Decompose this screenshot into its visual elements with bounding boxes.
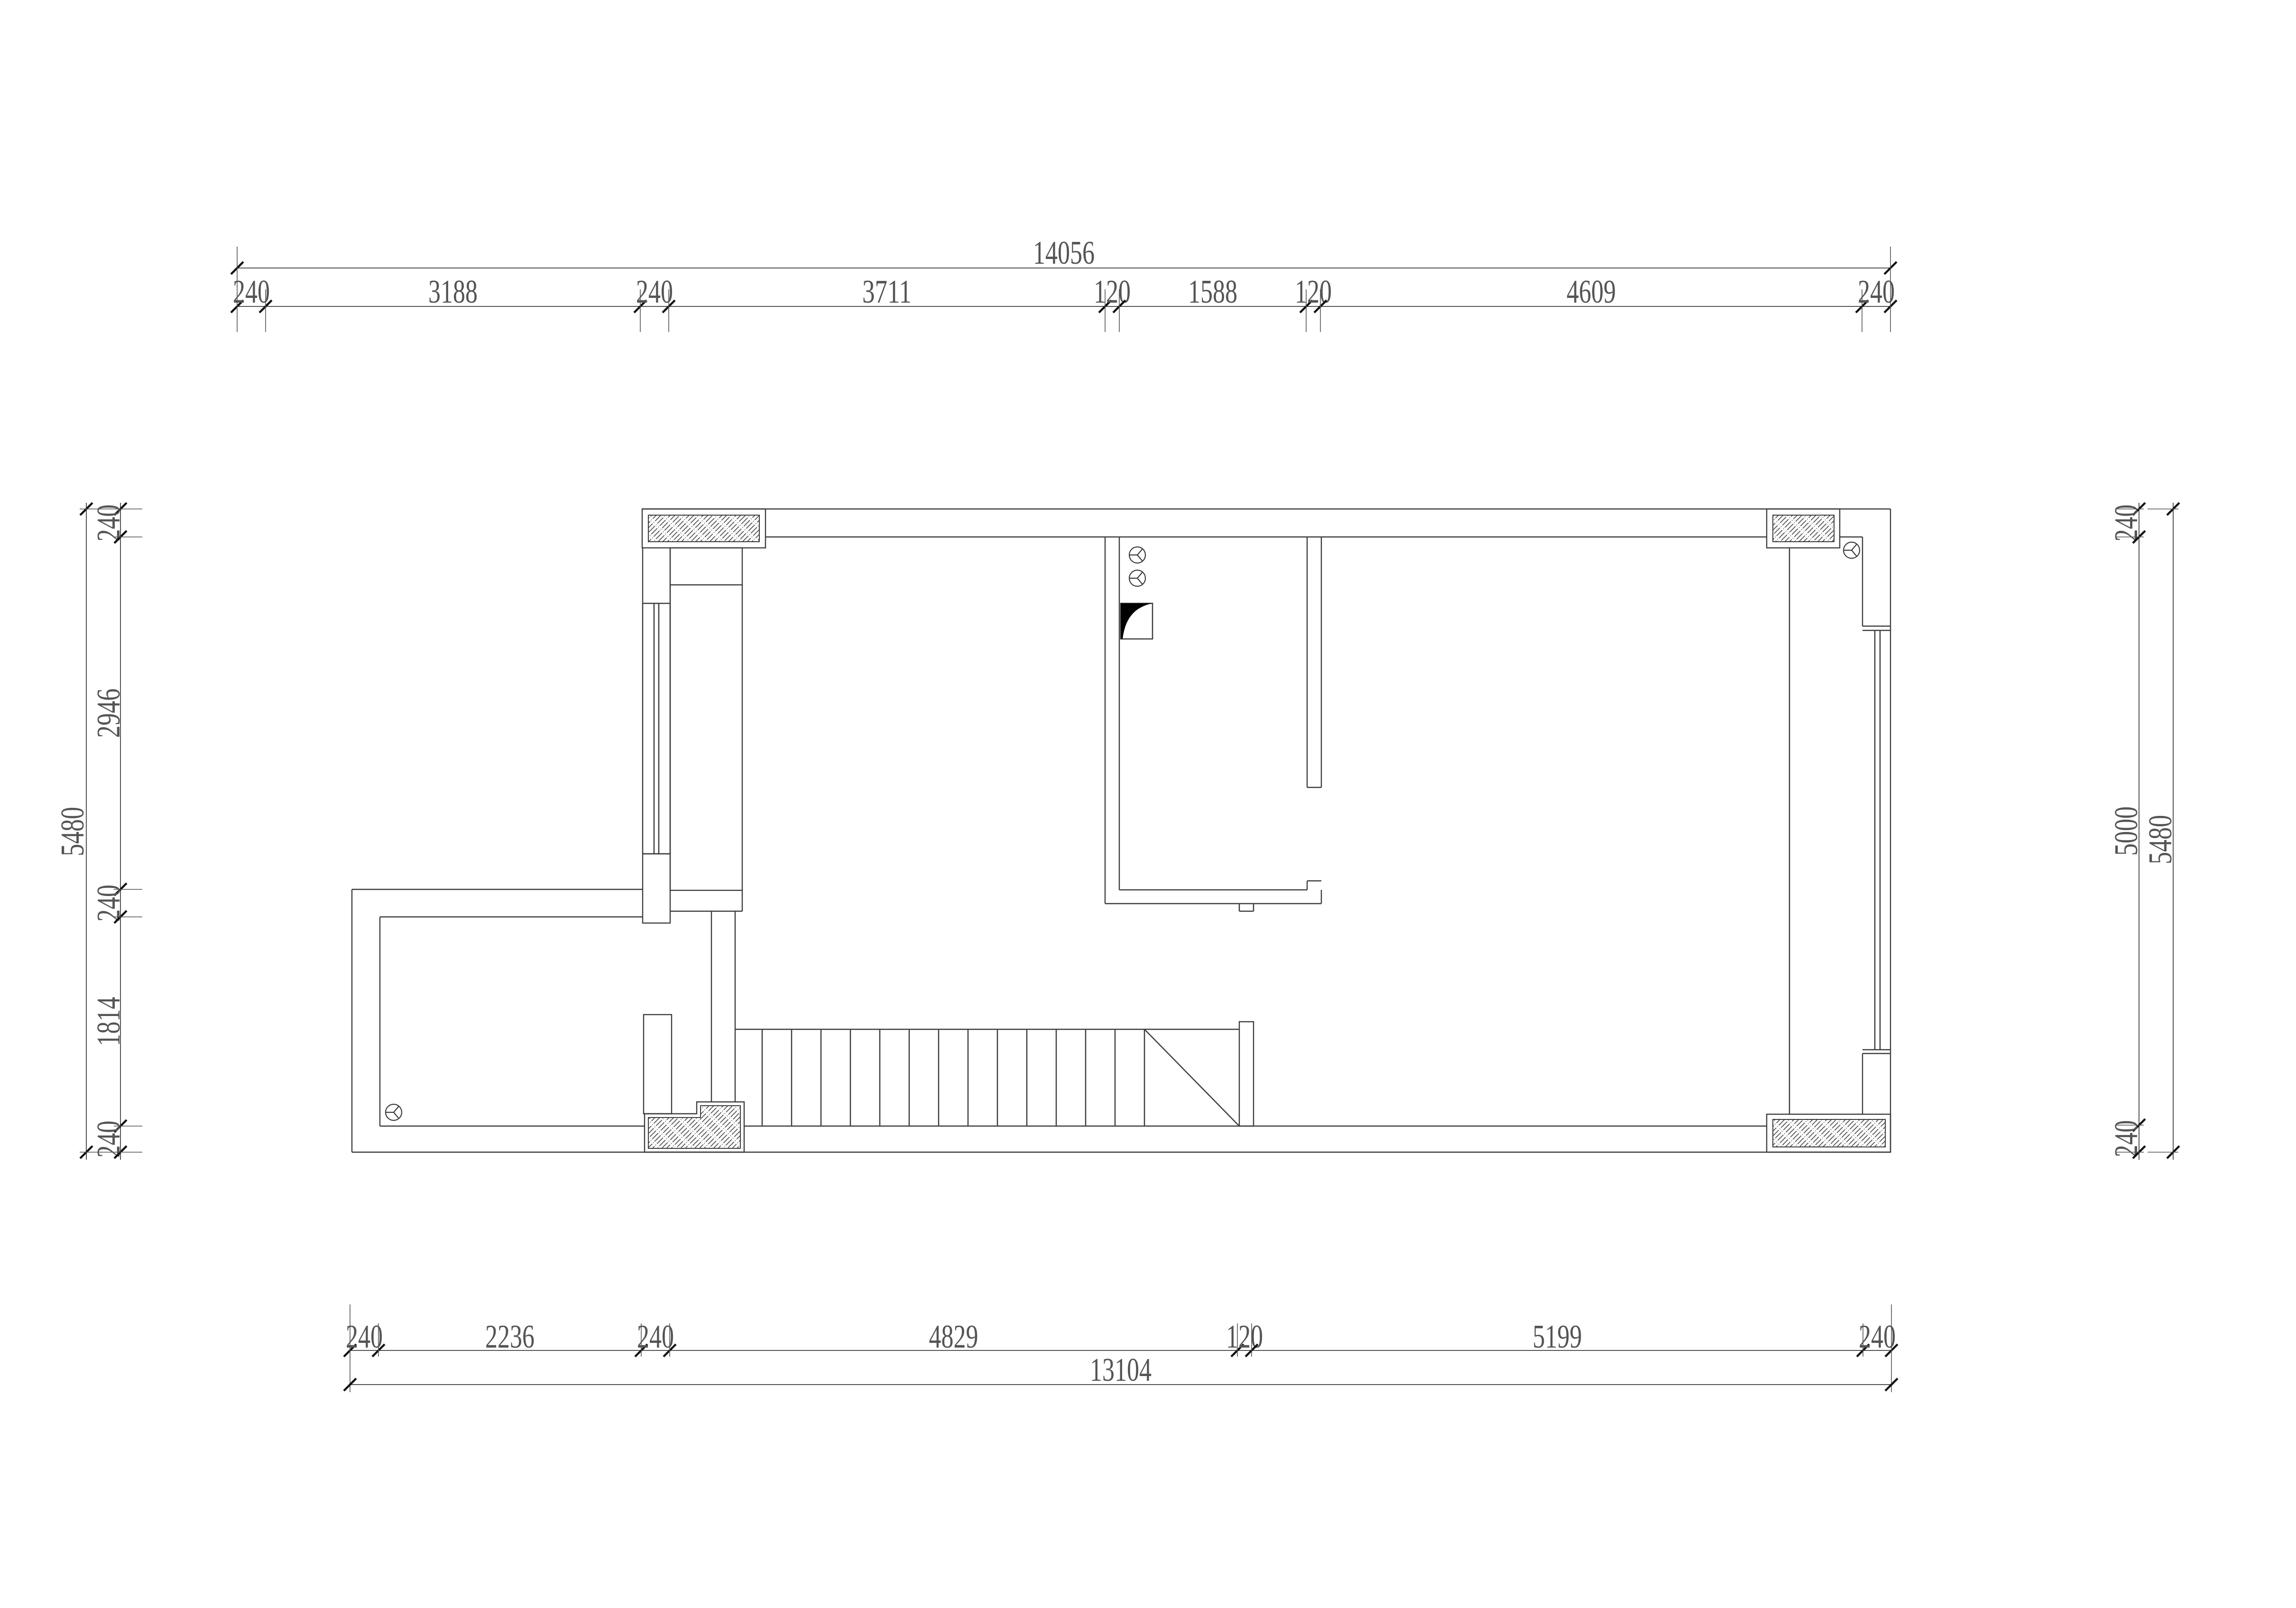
svg-text:3711: 3711	[862, 274, 912, 310]
svg-text:120: 120	[1295, 274, 1332, 310]
svg-text:14056: 14056	[1033, 235, 1095, 271]
svg-text:240: 240	[346, 1319, 383, 1355]
svg-text:5480: 5480	[2142, 815, 2179, 864]
svg-text:120: 120	[1094, 274, 1131, 310]
svg-text:240: 240	[1858, 274, 1895, 310]
svg-text:3188: 3188	[428, 274, 478, 310]
svg-text:2946: 2946	[91, 689, 127, 738]
svg-text:120: 120	[1226, 1319, 1263, 1355]
svg-text:4829: 4829	[929, 1319, 978, 1355]
svg-text:1814: 1814	[91, 997, 127, 1046]
svg-text:240: 240	[636, 274, 673, 310]
svg-text:2236: 2236	[485, 1319, 535, 1355]
svg-text:5000: 5000	[2108, 806, 2145, 856]
svg-text:1588: 1588	[1188, 274, 1237, 310]
svg-text:240: 240	[637, 1319, 674, 1355]
svg-text:240: 240	[1859, 1319, 1896, 1355]
svg-text:240: 240	[233, 274, 270, 310]
svg-text:13104: 13104	[1090, 1352, 1152, 1388]
svg-text:4609: 4609	[1567, 274, 1616, 310]
svg-text:5199: 5199	[1533, 1319, 1582, 1355]
svg-text:5480: 5480	[55, 807, 91, 856]
